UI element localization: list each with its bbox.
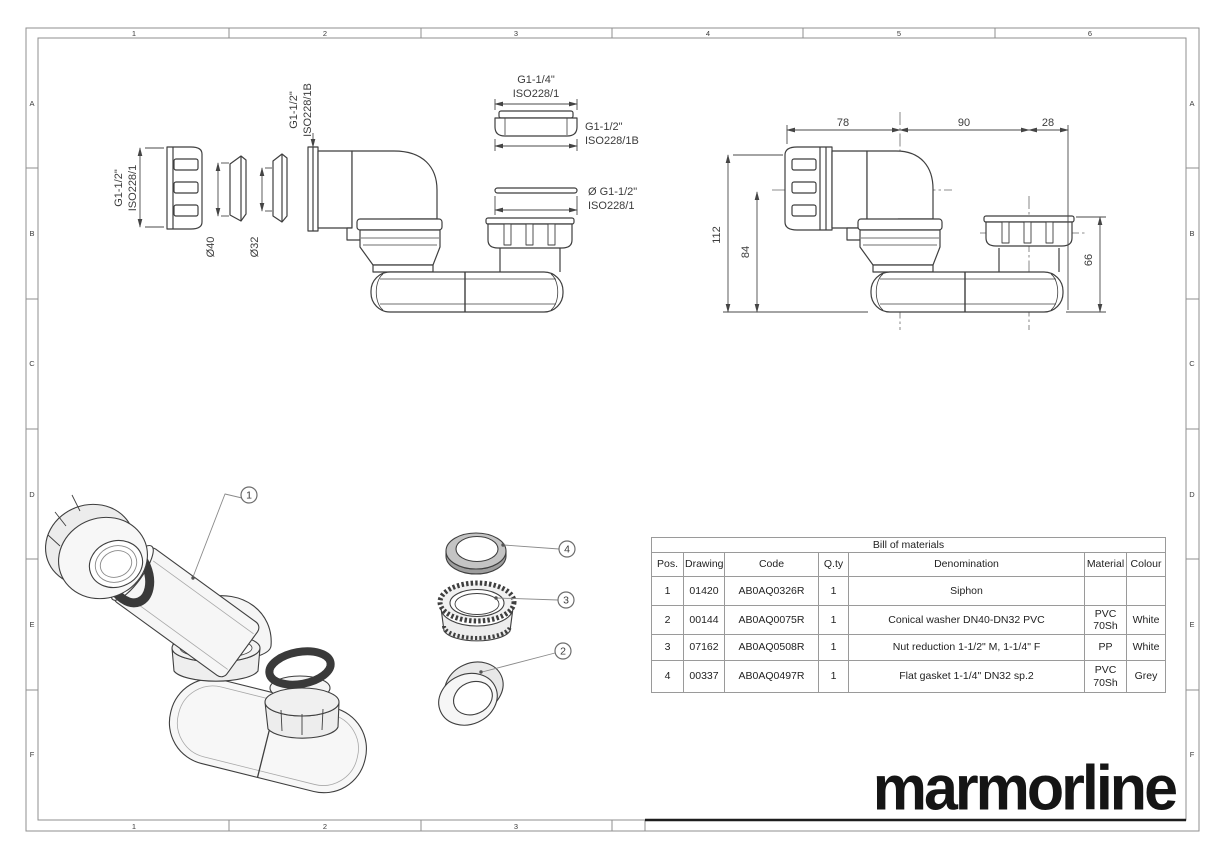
flat-gasket-top-view xyxy=(495,188,577,193)
bom-cell-material: PVC 70Sh xyxy=(1085,661,1127,693)
bom-cell-code: AB0AQ0508R xyxy=(725,635,819,661)
grid-col-label: 2 xyxy=(323,29,327,38)
assembled-siphon xyxy=(785,147,1074,312)
bom-cell-colour xyxy=(1127,577,1166,606)
grid-col-label: 3 xyxy=(514,822,518,831)
view-assembled-ortho: 78 90 28 112 84 66 xyxy=(711,112,1106,330)
iso-body xyxy=(160,670,375,802)
thread-label: ISO228/1 xyxy=(588,200,634,212)
bom-cell-colour: White xyxy=(1127,635,1166,661)
view-exploded-ortho: G1-1/2" ISO228/1 Ø40 Ø32 G1-1/2" ISO228/… xyxy=(113,74,639,312)
grid-row-label: E xyxy=(1189,620,1194,629)
grid-col-label: 4 xyxy=(706,29,710,38)
bom-cell-material: PVC 70Sh xyxy=(1085,606,1127,635)
grid-col-label: 6 xyxy=(1088,29,1092,38)
balloon-number: 2 xyxy=(560,646,566,658)
conical-washer-side-view xyxy=(230,156,246,221)
bom-cell-code: AB0AQ0326R xyxy=(725,577,819,606)
bom-cell-pos: 4 xyxy=(652,661,684,693)
bom-cell-code: AB0AQ0075R xyxy=(725,606,819,635)
grid-row-label: C xyxy=(29,359,35,368)
bom-cell-pos: 2 xyxy=(652,606,684,635)
bom-cell-material: PP xyxy=(1085,635,1127,661)
bom-cell-denomination: Siphon xyxy=(849,577,1085,606)
grid-row-label: D xyxy=(1189,490,1195,499)
grid-col-label: 1 xyxy=(132,29,136,38)
bom-cell-qty: 1 xyxy=(819,606,849,635)
grid-row-label: B xyxy=(29,229,34,238)
dim-label: 28 xyxy=(1042,117,1054,129)
thread-label: G1-1/2" xyxy=(288,91,300,129)
balloon-number: 4 xyxy=(564,544,570,556)
thread-label: ISO228/1B xyxy=(585,135,639,147)
bom-cell-code: AB0AQ0497R xyxy=(725,661,819,693)
bom-row: 3 07162 AB0AQ0508R 1 Nut reduction 1-1/2… xyxy=(652,635,1166,661)
nut-side-view xyxy=(167,147,202,229)
iso-conical-washer xyxy=(427,653,515,734)
grid-row-label: A xyxy=(1189,99,1194,108)
bom-row: 1 01420 AB0AQ0326R 1 Siphon xyxy=(652,577,1166,606)
grid-row-label: D xyxy=(29,490,35,499)
dim-label: 112 xyxy=(711,226,723,244)
bom-cell-drawing: 00144 xyxy=(684,606,725,635)
bom-header-code: Code xyxy=(725,553,819,577)
bom-header-qty: Q.ty xyxy=(819,553,849,577)
bom-cell-drawing: 01420 xyxy=(684,577,725,606)
bom-header-material: Material xyxy=(1085,553,1127,577)
grid-col-label: 5 xyxy=(897,29,901,38)
drawing-sheet: 1 2 3 4 5 6 1 2 3 A B C D E F A B C D E … xyxy=(0,0,1214,858)
balloon-number: 1 xyxy=(246,490,252,502)
view-iso-exploded: 1 4 3 2 xyxy=(34,487,575,802)
siphon-elbow-side-view xyxy=(308,147,574,312)
grid-col-label: 2 xyxy=(323,822,327,831)
bom-cell-pos: 3 xyxy=(652,635,684,661)
grid-col-label: 1 xyxy=(132,822,136,831)
dim-label: 84 xyxy=(740,246,752,258)
grid-row-label: F xyxy=(1190,750,1195,759)
bom-row: 4 00337 AB0AQ0497R 1 Flat gasket 1-1/4" … xyxy=(652,661,1166,693)
iso-flat-gasket xyxy=(446,533,506,574)
bom-cell-qty: 1 xyxy=(819,635,849,661)
thread-label: G1-1/2" xyxy=(585,121,623,133)
grid-row-label: E xyxy=(29,620,34,629)
thread-label: ISO228/1 xyxy=(127,165,139,211)
grid-col-label: 3 xyxy=(514,29,518,38)
grid-row-label: F xyxy=(30,750,35,759)
bom-cell-denomination: Nut reduction 1-1/2" M, 1-1/4" F xyxy=(849,635,1085,661)
thread-label: ISO228/1 xyxy=(513,88,559,100)
bom-title: Bill of materials xyxy=(652,538,1166,553)
thread-label: G1-1/2" xyxy=(113,169,125,207)
thread-label: ISO228/1B xyxy=(302,83,314,137)
bom-cell-denomination: Flat gasket 1-1/4" DN32 sp.2 xyxy=(849,661,1085,693)
bom-cell-drawing: 00337 xyxy=(684,661,725,693)
bom-cell-qty: 1 xyxy=(819,577,849,606)
bom-cell-colour: Grey xyxy=(1127,661,1166,693)
bom-header-colour: Colour xyxy=(1127,553,1166,577)
bill-of-materials-table: Bill of materials Pos. Drawing Code Q.ty… xyxy=(651,537,1166,693)
nut-reduction-side-view xyxy=(495,111,577,136)
bom-cell-colour: White xyxy=(1127,606,1166,635)
bom-header-drawing: Drawing xyxy=(684,553,725,577)
balloons xyxy=(241,487,575,659)
diameter-label: Ø32 xyxy=(249,237,261,258)
grid-row-label: A xyxy=(29,99,34,108)
balloon-numbers: 1 4 3 2 xyxy=(246,490,570,658)
dim-label: 66 xyxy=(1083,254,1095,266)
grid-row-label: C xyxy=(1189,359,1195,368)
thread-label: G1-1/4" xyxy=(517,74,555,86)
dim-label: 90 xyxy=(958,117,970,129)
bom-row: 2 00144 AB0AQ0075R 1 Conical washer DN40… xyxy=(652,606,1166,635)
balloon-number: 3 xyxy=(563,595,569,607)
bom-cell-qty: 1 xyxy=(819,661,849,693)
bom-cell-pos: 1 xyxy=(652,577,684,606)
iso-reduction-nut xyxy=(440,583,514,641)
thread-label: Ø G1-1/2" xyxy=(588,186,637,198)
bom-header-denomination: Denomination xyxy=(849,553,1085,577)
bom-header-pos: Pos. xyxy=(652,553,684,577)
grid-row-label: B xyxy=(1189,229,1194,238)
iso-outlet-collar xyxy=(265,688,339,738)
dim-label: 78 xyxy=(837,117,849,129)
brand-logo: marmorline xyxy=(645,756,1175,820)
bom-cell-denomination: Conical washer DN40-DN32 PVC xyxy=(849,606,1085,635)
diameter-label: Ø40 xyxy=(205,237,217,258)
bom-cell-material xyxy=(1085,577,1127,606)
bom-cell-drawing: 07162 xyxy=(684,635,725,661)
flat-gasket-side-view xyxy=(273,154,287,222)
